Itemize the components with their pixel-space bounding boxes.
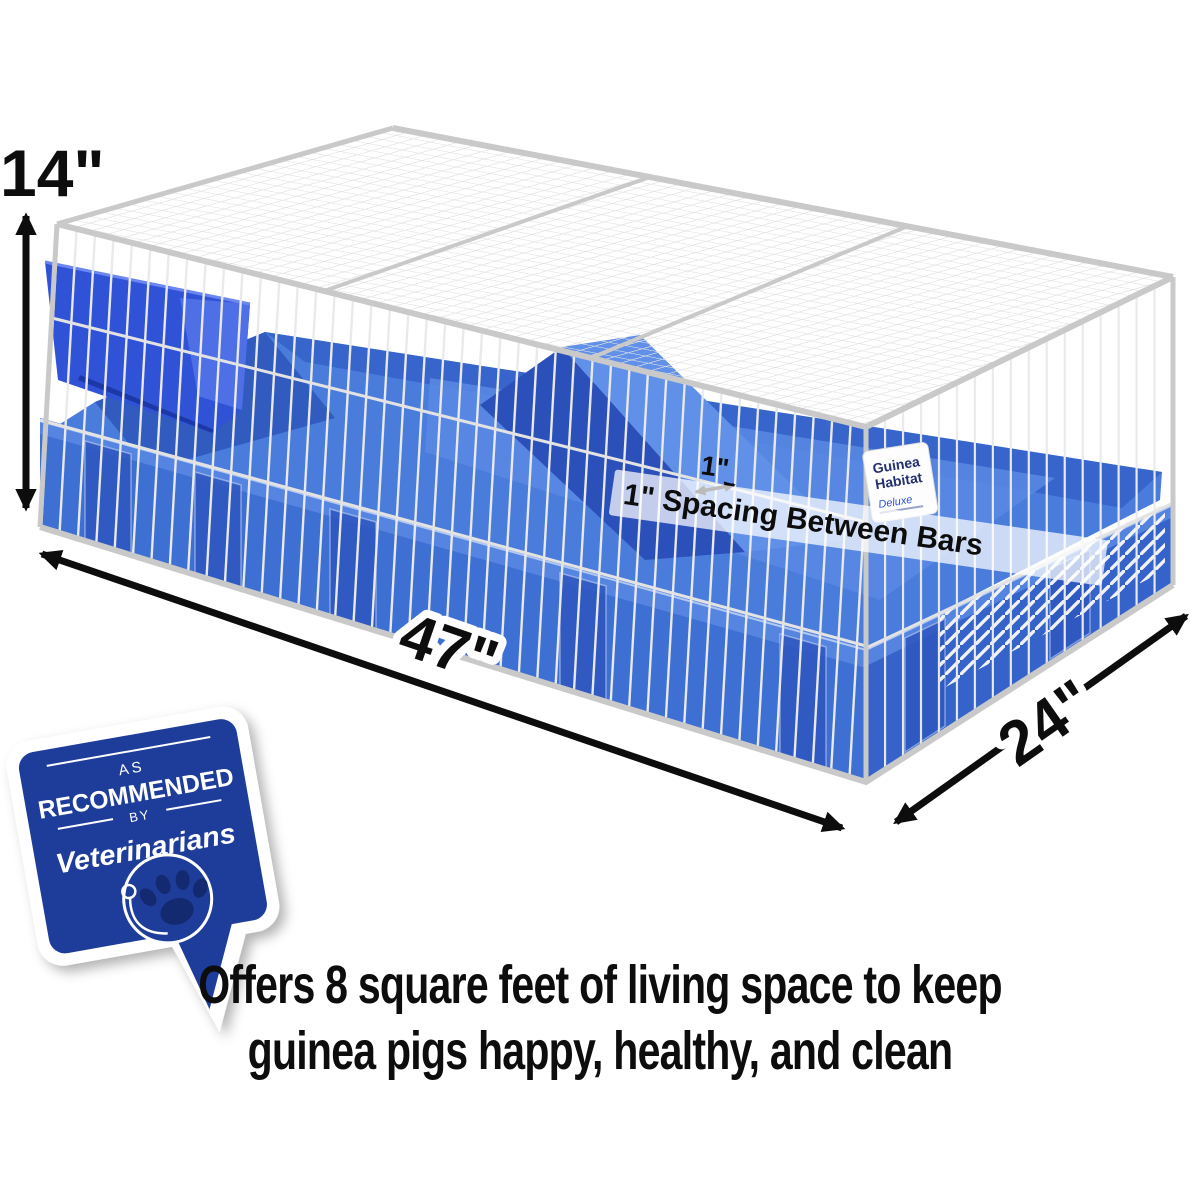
height-dimension-label: 14" [0,136,105,210]
bar-spacing-short-label: 1" [699,450,731,484]
caption-line2: guinea pigs happy, healthy, and clean [144,1018,1056,1084]
caption: Offers 8 square feet of living space to … [144,952,1056,1084]
caption-line1: Offers 8 square feet of living space to … [144,952,1056,1018]
